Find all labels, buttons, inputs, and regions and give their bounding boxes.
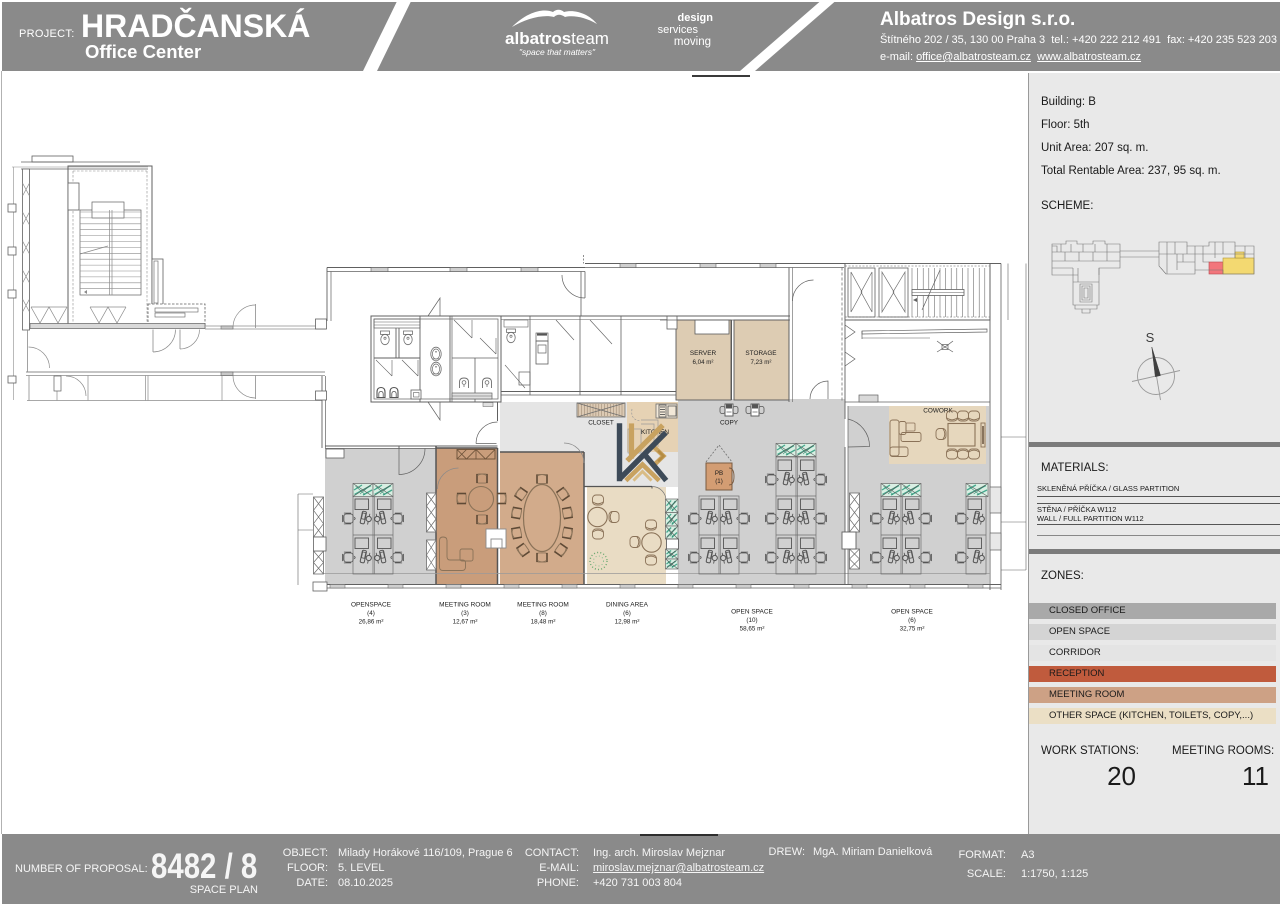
svg-text:STORAGE: STORAGE xyxy=(745,350,776,357)
svg-text:COPY: COPY xyxy=(720,420,739,427)
svg-text:OPENSPACE: OPENSPACE xyxy=(351,602,392,609)
svg-text:(6): (6) xyxy=(908,617,916,624)
svg-text:6,04 m²: 6,04 m² xyxy=(693,359,714,366)
svg-text:26,86 m²: 26,86 m² xyxy=(359,619,384,626)
svg-text:12,67 m²: 12,67 m² xyxy=(453,619,478,626)
svg-text:(10): (10) xyxy=(746,617,757,624)
svg-text:DINING AREA: DINING AREA xyxy=(606,602,649,609)
svg-text:CLOSET: CLOSET xyxy=(588,420,614,427)
svg-text:12,98 m²: 12,98 m² xyxy=(615,619,640,626)
svg-text:OPEN SPACE: OPEN SPACE xyxy=(891,609,933,616)
svg-text:SERVER: SERVER xyxy=(690,350,717,357)
svg-text:18,48 m²: 18,48 m² xyxy=(531,619,556,626)
svg-text:OPEN SPACE: OPEN SPACE xyxy=(731,609,773,616)
svg-text:32,75 m²: 32,75 m² xyxy=(900,626,925,633)
svg-text:(3): (3) xyxy=(461,610,469,617)
svg-text:(1): (1) xyxy=(715,478,723,485)
svg-text:(4): (4) xyxy=(367,610,375,617)
svg-text:(8): (8) xyxy=(539,610,547,617)
svg-text:S: S xyxy=(1146,330,1155,345)
svg-text:(6): (6) xyxy=(623,610,631,617)
svg-text:58,65 m²: 58,65 m² xyxy=(740,626,765,633)
svg-text:PB: PB xyxy=(715,470,723,477)
svg-text:7,23 m²: 7,23 m² xyxy=(751,359,772,366)
svg-text:MEETING ROOM: MEETING ROOM xyxy=(439,602,491,609)
svg-text:MEETING ROOM: MEETING ROOM xyxy=(517,602,569,609)
